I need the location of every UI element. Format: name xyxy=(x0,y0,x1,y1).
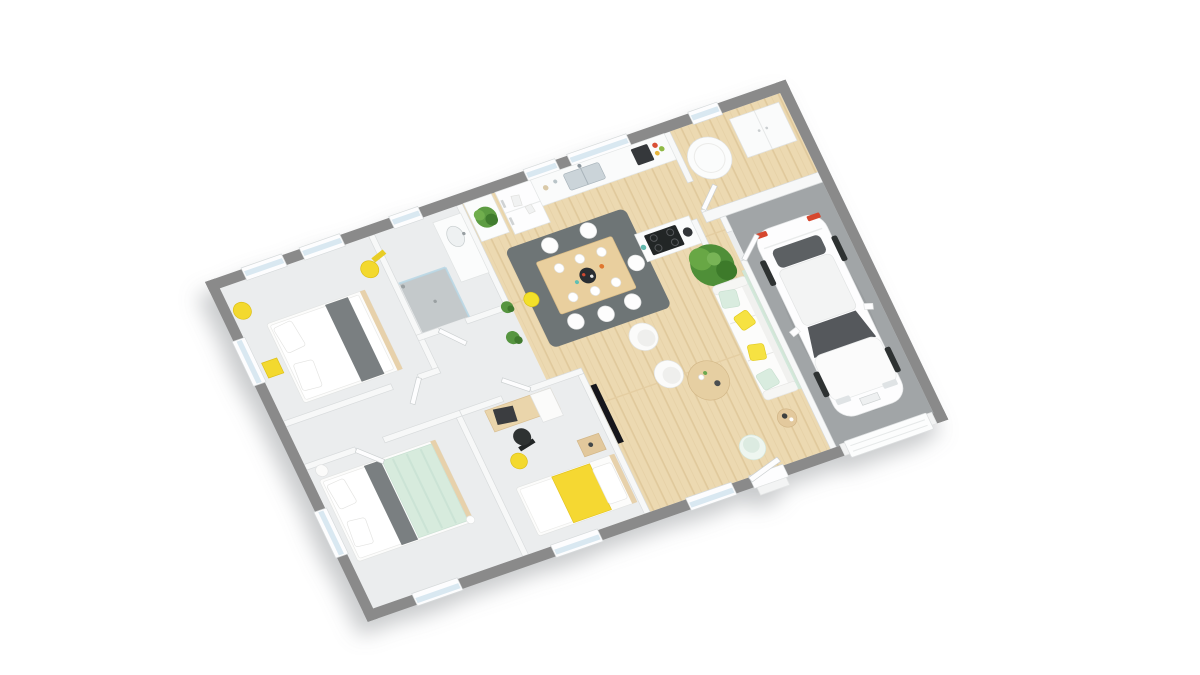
floor-plan-svg xyxy=(0,0,1200,675)
shadow-wrapper xyxy=(203,78,952,631)
car-mirror xyxy=(864,303,874,309)
isometric-plan-group xyxy=(203,78,952,631)
sofa-pillow-yellow xyxy=(747,343,767,361)
floor-plan-render-canvas xyxy=(0,0,1200,675)
